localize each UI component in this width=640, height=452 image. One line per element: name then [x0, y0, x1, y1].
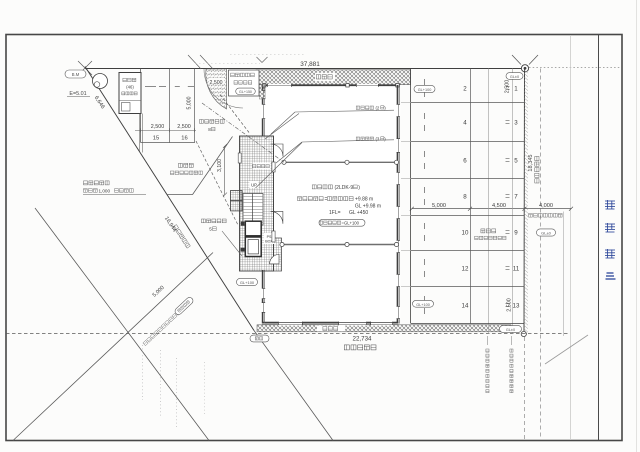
svg-text:GL±0: GL±0 — [541, 231, 552, 236]
svg-text:GL+150: GL+150 — [239, 90, 252, 94]
svg-text:(2LDK-9: (2LDK-9 — [335, 185, 354, 191]
svg-text:GL+100: GL+100 — [240, 280, 255, 285]
svg-text:3,100: 3,100 — [217, 159, 223, 172]
svg-text:3: 3 — [514, 119, 518, 126]
svg-text:(2: (2 — [376, 106, 380, 111]
svg-text:UP: UP — [251, 183, 257, 188]
svg-text:37,881: 37,881 — [300, 61, 320, 68]
svg-text:5,000: 5,000 — [187, 96, 193, 109]
svg-text:GL±0: GL±0 — [506, 328, 515, 332]
svg-text:2,500: 2,500 — [177, 124, 191, 130]
svg-text:4,000: 4,000 — [539, 203, 553, 209]
svg-text:5: 5 — [514, 157, 518, 164]
svg-text:GL +9.98 m: GL +9.98 m — [355, 204, 381, 210]
svg-text:+9.88 m: +9.88 m — [355, 197, 373, 203]
svg-text:GL+100: GL+100 — [416, 303, 430, 307]
svg-text:1: 1 — [514, 85, 518, 92]
svg-text:5: 5 — [209, 227, 212, 232]
svg-text:4: 4 — [463, 119, 467, 126]
svg-text:12: 12 — [462, 265, 469, 272]
svg-text:(3: (3 — [376, 137, 380, 142]
svg-text:16: 16 — [181, 136, 187, 142]
svg-text:2,500: 2,500 — [505, 80, 511, 94]
svg-text:4,500: 4,500 — [492, 203, 506, 209]
svg-text:B.M: B.M — [72, 72, 80, 77]
svg-text:14: 14 — [462, 302, 469, 309]
svg-text:1,000: 1,000 — [99, 188, 111, 193]
svg-text:2,500: 2,500 — [151, 124, 165, 130]
svg-text:1FL=: 1FL= — [329, 210, 341, 216]
svg-text:11: 11 — [513, 265, 520, 272]
svg-text:7: 7 — [514, 193, 518, 200]
svg-text:9: 9 — [514, 229, 518, 236]
svg-text:6: 6 — [463, 157, 467, 164]
svg-text:2,500: 2,500 — [210, 80, 223, 86]
svg-text:(46): (46) — [126, 85, 134, 90]
svg-text:5,000: 5,000 — [432, 203, 446, 209]
svg-text:18,345: 18,345 — [528, 154, 534, 171]
svg-text:8: 8 — [463, 193, 467, 200]
svg-text:GL+100: GL+100 — [418, 88, 432, 92]
svg-text:2,500: 2,500 — [507, 298, 513, 312]
svg-text:=GL+100: =GL+100 — [342, 220, 360, 225]
svg-text:10: 10 — [462, 229, 469, 236]
svg-text:E=5.01: E=5.01 — [69, 91, 86, 97]
svg-text:15: 15 — [153, 136, 159, 142]
svg-text:=: = — [325, 197, 328, 203]
svg-text:8: 8 — [208, 127, 211, 132]
svg-text:2: 2 — [463, 85, 467, 92]
svg-text:GL±0: GL±0 — [510, 75, 519, 79]
svg-text:GL +450: GL +450 — [349, 210, 368, 216]
svg-text:22,734: 22,734 — [353, 336, 372, 343]
svg-text:PS: PS — [267, 235, 272, 239]
svg-text:13: 13 — [513, 302, 520, 309]
